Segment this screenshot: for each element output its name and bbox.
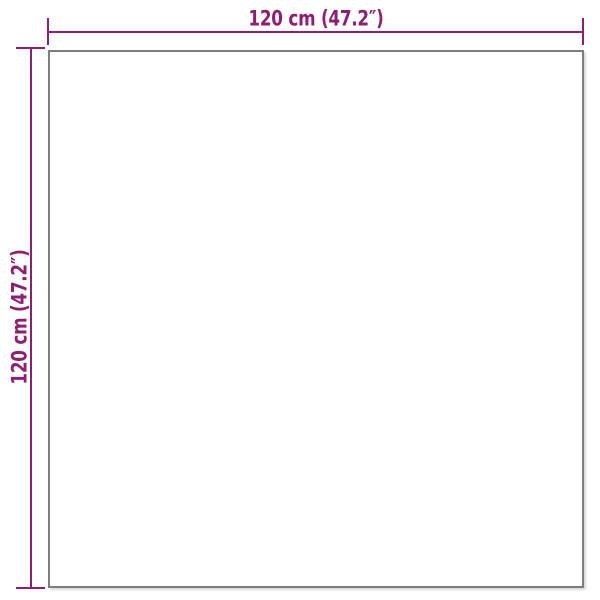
top-dimension-line [48, 31, 584, 33]
left-dimension-tick-bottom [16, 587, 45, 589]
left-dimension-label: 120 cm (47.2″) [10, 249, 31, 384]
product-outline [48, 50, 584, 588]
top-dimension-label: 120 cm (47.2″) [248, 9, 383, 30]
top-dimension-tick-right [582, 18, 584, 45]
dimension-diagram: 120 cm (47.2″) 120 cm (47.2″) [0, 0, 600, 600]
left-dimension-line [30, 48, 32, 588]
left-dimension-tick-top [16, 47, 45, 49]
top-dimension-tick-left [47, 18, 49, 45]
